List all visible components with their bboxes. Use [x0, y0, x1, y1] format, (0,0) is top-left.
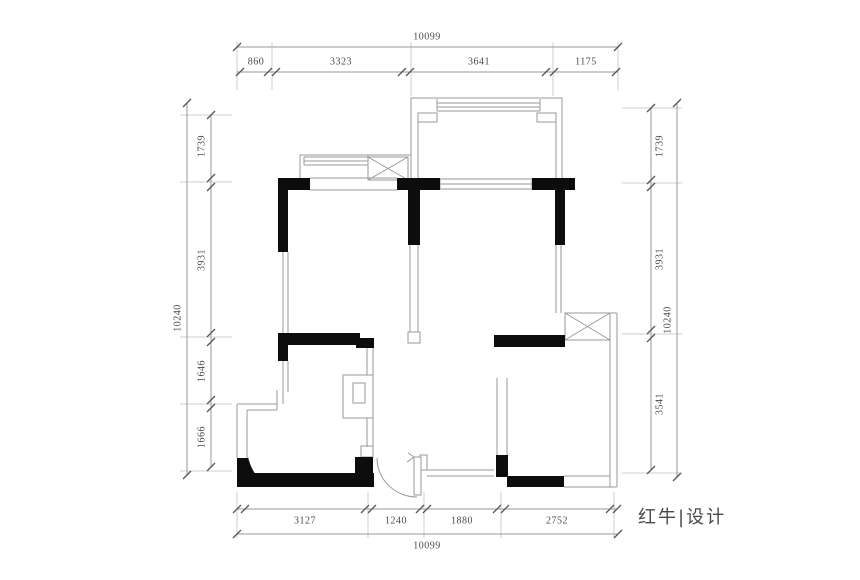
dim-bottom-total: 10099 — [413, 541, 441, 552]
dimension-extension-lines — [180, 42, 682, 538]
dim-top-segment-3: 1175 — [575, 57, 597, 68]
dim-top-segment-2: 3641 — [468, 57, 490, 68]
entry-door — [377, 453, 421, 497]
thin-walls-and-windows — [237, 98, 617, 487]
bathroom-fixture — [343, 375, 373, 418]
dim-left-segment-0: 1739 — [197, 135, 208, 157]
dim-left-total: 10240 — [173, 304, 184, 332]
dim-right-segment-0: 1739 — [655, 135, 666, 157]
dim-bottom-segment-1: 1240 — [385, 516, 407, 527]
dim-top-segment-0: 860 — [248, 57, 265, 68]
dimension-lines — [187, 47, 677, 534]
shaft-hatch-box-top — [368, 157, 408, 180]
shaft-hatch-box-right — [565, 313, 610, 340]
dim-right-segment-1: 3931 — [655, 248, 666, 270]
dim-top-total: 10099 — [413, 32, 441, 43]
dim-right-total: 10240 — [663, 306, 674, 334]
floor-plan-page: 10099 860 3323 3641 1175 3127 1240 1880 … — [0, 0, 860, 580]
dim-bottom-segment-2: 1880 — [451, 516, 473, 527]
dim-right-segment-2: 3541 — [655, 393, 666, 415]
floor-plan-canvas — [0, 0, 860, 580]
dim-bottom-segment-0: 3127 — [294, 516, 316, 527]
dim-left-segment-2: 1646 — [197, 360, 208, 382]
brand-logo: 红牛|设计 — [638, 503, 758, 529]
dim-bottom-segment-3: 2752 — [546, 516, 568, 527]
dim-left-segment-1: 3931 — [197, 249, 208, 271]
dimension-ticks — [183, 43, 681, 538]
dim-left-segment-3: 1666 — [197, 426, 208, 448]
dim-top-segment-1: 3323 — [330, 57, 352, 68]
